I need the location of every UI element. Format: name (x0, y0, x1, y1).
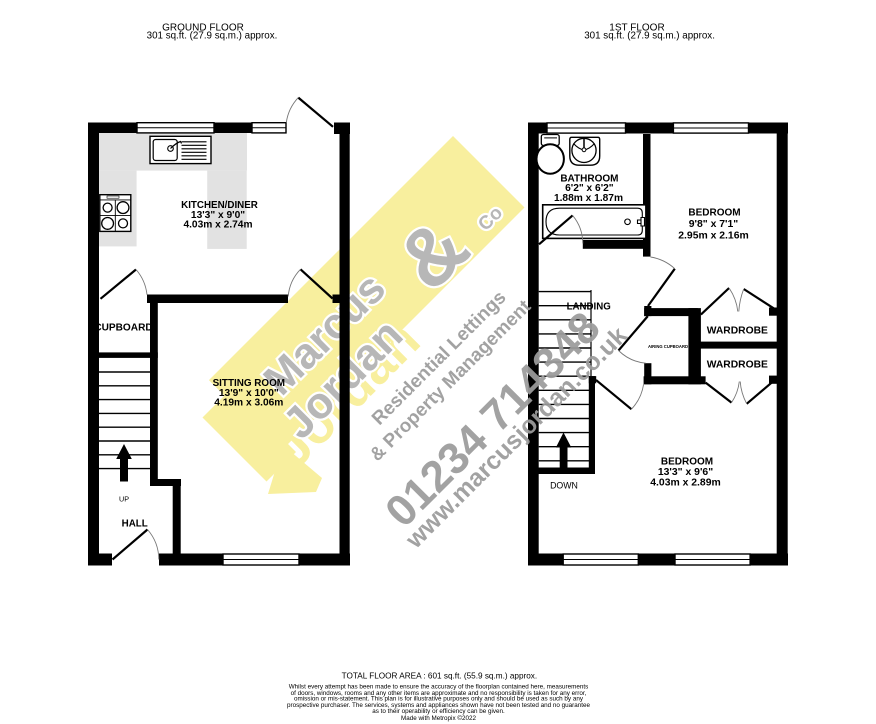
svg-text:4.19m x 3.06m: 4.19m x 3.06m (214, 398, 283, 409)
svg-text:Made with Metropix ©2022: Made with Metropix ©2022 (401, 714, 476, 722)
svg-text:301 sq.ft. (27.9 sq.m.) approx: 301 sq.ft. (27.9 sq.m.) approx. (147, 31, 278, 42)
svg-text:as to their operability or eff: as to their operability or efficiency ca… (372, 708, 505, 715)
svg-text:HALL: HALL (122, 518, 148, 529)
svg-text:WARDROBE: WARDROBE (707, 326, 768, 337)
svg-text:1.88m x 1.87m: 1.88m x 1.87m (554, 193, 623, 204)
svg-text:4.03m x 2.74m: 4.03m x 2.74m (183, 220, 252, 231)
svg-text:BEDROOM: BEDROOM (661, 456, 713, 467)
svg-text:AIRING CUPBOARD: AIRING CUPBOARD (648, 344, 688, 349)
svg-text:WARDROBE: WARDROBE (707, 360, 768, 371)
svg-text:CUPBOARD: CUPBOARD (94, 323, 152, 334)
svg-text:DOWN: DOWN (550, 481, 578, 491)
svg-text:UP: UP (119, 495, 129, 504)
svg-text:13'3" x 9'6": 13'3" x 9'6" (658, 467, 713, 478)
svg-text:4.03m x 2.89m: 4.03m x 2.89m (650, 477, 720, 488)
svg-text:301 sq.ft. (27.9 sq.m.) approx: 301 sq.ft. (27.9 sq.m.) approx. (584, 31, 715, 42)
svg-text:9'8" x 7'1": 9'8" x 7'1" (689, 219, 739, 230)
svg-text:2.95m x 2.16m: 2.95m x 2.16m (678, 230, 748, 241)
svg-text:BEDROOM: BEDROOM (688, 207, 740, 218)
svg-text:TOTAL FLOOR AREA : 601 sq.ft.: TOTAL FLOOR AREA : 601 sq.ft. (55.9 sq.m… (342, 671, 538, 680)
